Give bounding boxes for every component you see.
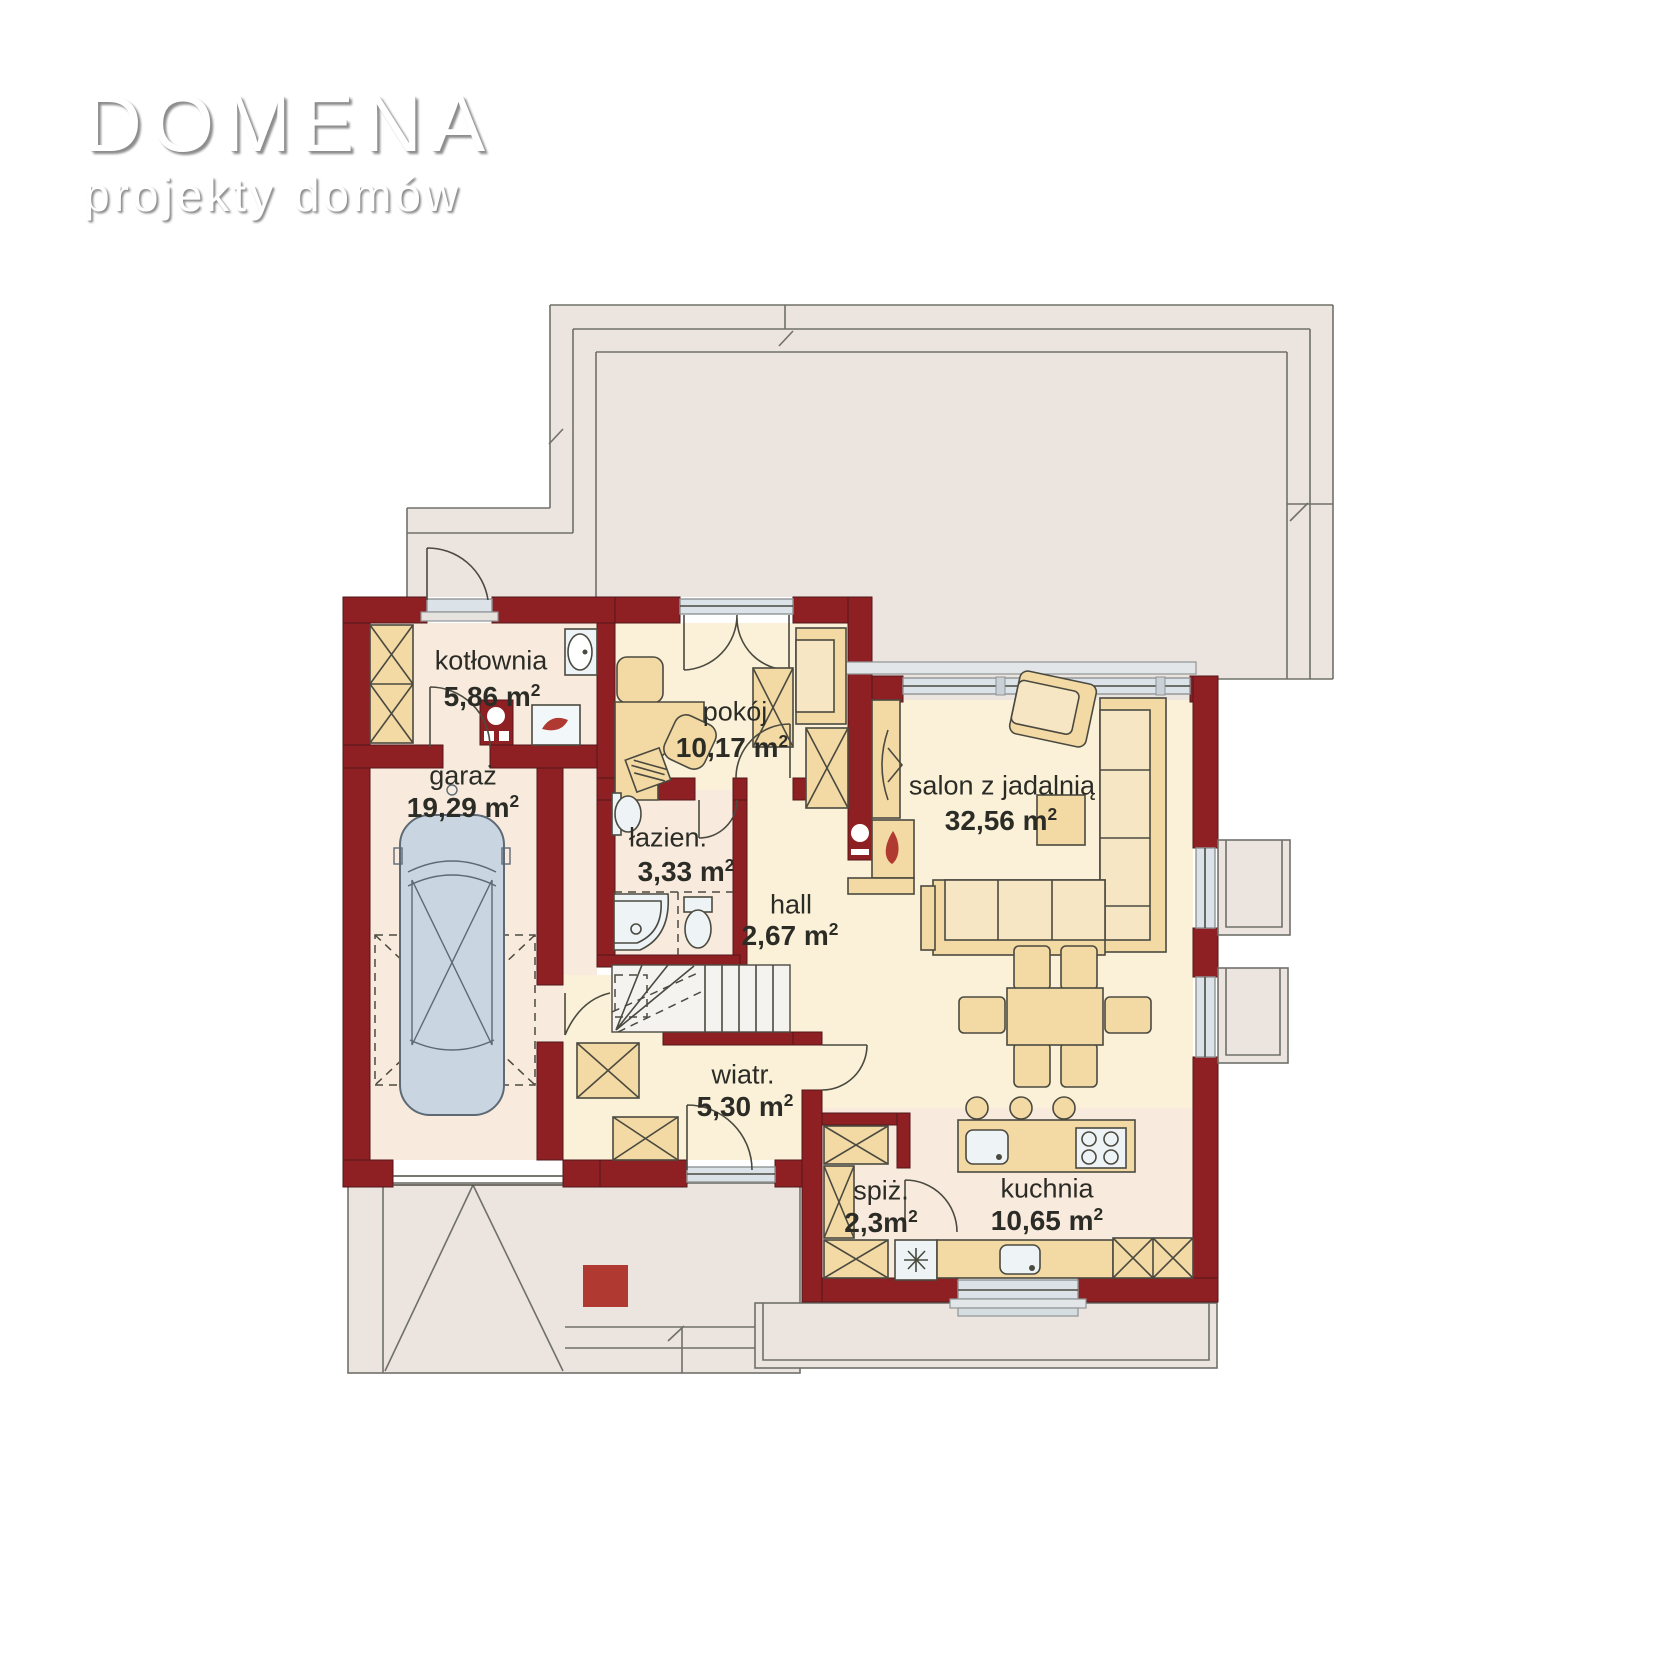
room-label-hall: hall (770, 892, 812, 919)
bar-stool (966, 1097, 988, 1119)
room-label-spizarnia: spiż. (853, 1178, 909, 1205)
sofa-pokoj (796, 628, 846, 724)
floor-plan-page: DOMENA projekty domów kotłownia 5,86 m2 … (0, 0, 1680, 1680)
room-label-garaz: garaż (429, 763, 497, 790)
room-area-lazienka: 3,33 m2 (638, 852, 735, 886)
room-area-kotlownia: 5,86 m2 (444, 677, 541, 711)
room-area-spizarnia: 2,3m2 (844, 1203, 917, 1237)
chair (1061, 1043, 1097, 1087)
chimney (583, 1265, 628, 1307)
room-area-hall: 2,67 m2 (742, 916, 839, 950)
dining-table (1007, 988, 1103, 1045)
logo-title: DOMENA (84, 84, 495, 164)
room-label-lazienka: łazien. (629, 825, 707, 852)
staircase (612, 965, 790, 1032)
room-area-garaz: 19,29 m2 (407, 788, 519, 822)
armchair-small (617, 657, 663, 703)
room-label-kuchnia: kuchnia (1000, 1176, 1093, 1203)
salon-window-sill (835, 662, 1196, 674)
room-area-salon: 32,56 m2 (945, 801, 1057, 835)
window-box-2 (1218, 968, 1288, 1063)
window-box-1 (1218, 840, 1290, 935)
room-area-wiatrolap: 5,30 m2 (697, 1087, 794, 1121)
island-sink (966, 1130, 1008, 1164)
room-label-wiatrolap: wiatr. (711, 1062, 774, 1089)
bar-stool (1053, 1097, 1075, 1119)
chair (1014, 1043, 1050, 1087)
chair (1105, 997, 1151, 1033)
kitchen-counter-south (895, 1238, 1193, 1280)
chair (1061, 946, 1097, 990)
chair (1014, 946, 1050, 990)
room-area-pokoj: 10,17 m2 (676, 728, 788, 762)
room-label-kotlownia: kotłownia (435, 648, 548, 675)
logo: DOMENA projekty domów (84, 84, 495, 222)
room-label-salon: salon z jadalnią (909, 773, 1095, 800)
chair (959, 997, 1005, 1033)
car (394, 785, 510, 1115)
floor-plan-drawing (0, 0, 1680, 1680)
bar-stool (1010, 1097, 1032, 1119)
entry-threshold-kotlownia (427, 599, 492, 612)
room-area-kuchnia: 10,65 m2 (991, 1201, 1103, 1235)
room-label-pokoj: pokój (703, 699, 768, 726)
logo-subtitle: projekty domów (84, 168, 495, 222)
kitchen-island (958, 1120, 1135, 1172)
driveway-area (348, 1183, 800, 1373)
tv-unit (872, 700, 902, 818)
toilet (685, 910, 711, 948)
